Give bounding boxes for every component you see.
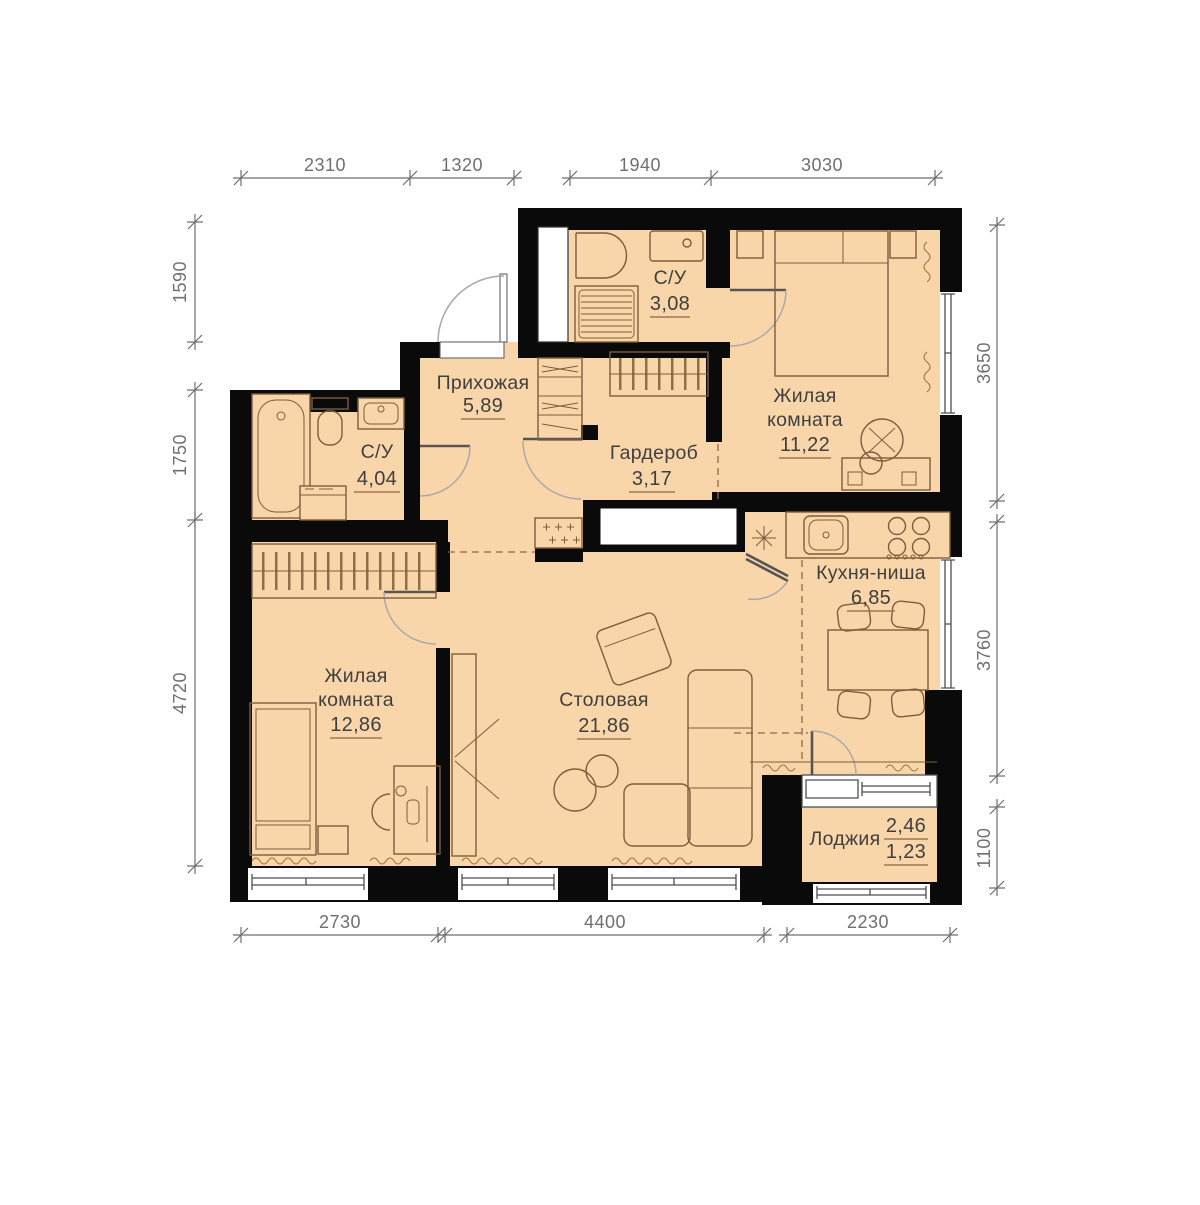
wall-segment: [230, 520, 448, 542]
room-label: комната: [767, 409, 843, 431]
wall-segment: [400, 342, 440, 358]
dimension-label: 1100: [974, 828, 994, 869]
room-area: 11,22: [780, 434, 830, 456]
room-label: С/У: [654, 267, 687, 289]
room-area: 21,86: [578, 715, 630, 737]
room-area: 3,08: [650, 293, 690, 315]
sink-icon: [650, 231, 703, 261]
room-label: Лоджия: [810, 828, 881, 850]
wall-segment: [706, 227, 730, 288]
dimension-label: 3030: [801, 155, 843, 175]
room-label: С/У: [361, 441, 394, 463]
dimension-label: 1940: [619, 155, 661, 175]
room-area: 6,85: [851, 587, 891, 609]
room-area: 2,46: [886, 815, 926, 837]
washing-machine: [300, 486, 346, 520]
floor-plan-page: С/У 3,08 Жилая комната 11,22 Прихожая 5,…: [0, 0, 1200, 1200]
room-label: Столовая: [559, 689, 649, 711]
electric-panel: [535, 518, 582, 548]
wall-segment: [230, 412, 252, 902]
dimension-label: 4720: [170, 672, 190, 714]
entrance-door-arc: [438, 276, 504, 342]
wall-niche-opening: [600, 508, 737, 545]
room-label: Кухня-ниша: [816, 562, 926, 584]
room-area: 4,04: [357, 468, 397, 490]
dimension-label: 4400: [584, 912, 626, 932]
dimension-label: 1320: [441, 155, 483, 175]
room-label: Гардероб: [610, 442, 698, 464]
entrance-threshold: [440, 342, 504, 358]
room-label: Прихожая: [437, 372, 530, 394]
room-label: комната: [318, 689, 394, 711]
dimension-label: 1750: [170, 434, 190, 476]
wall-segment: [518, 342, 730, 358]
wall-segment: [518, 208, 962, 230]
wall-segment: [940, 208, 962, 292]
wall-segment: [436, 648, 450, 866]
dimension-label: 2730: [319, 912, 361, 932]
dimension-label: 2230: [847, 912, 889, 932]
wall-segment: [436, 542, 450, 592]
window-loggia: [813, 884, 930, 903]
room-label: Жилая: [324, 665, 387, 687]
wall-segment: [581, 425, 598, 440]
room-area: 12,86: [330, 714, 382, 736]
wall-segment: [404, 412, 420, 522]
entrance-door-leaf: [500, 274, 507, 342]
floor-bottom-section: [230, 520, 786, 902]
dimension-label: 1590: [170, 261, 190, 303]
room-label: Жилая: [773, 385, 836, 407]
room-area: 5,89: [463, 395, 503, 417]
floor-plan-svg: С/У 3,08 Жилая комната 11,22 Прихожая 5,…: [0, 0, 1200, 1200]
dimension-label: 3760: [974, 629, 994, 671]
wall-segment: [535, 548, 583, 562]
wall-segment: [518, 230, 538, 358]
room-area: 3,17: [632, 468, 672, 490]
window-bedroom-left: [248, 868, 368, 900]
dimension-label: 2310: [304, 155, 346, 175]
dimension-label: 3650: [974, 342, 994, 384]
floor-top-section: [536, 227, 962, 520]
room-area: 1,23: [886, 841, 926, 863]
shaft: [538, 227, 568, 342]
